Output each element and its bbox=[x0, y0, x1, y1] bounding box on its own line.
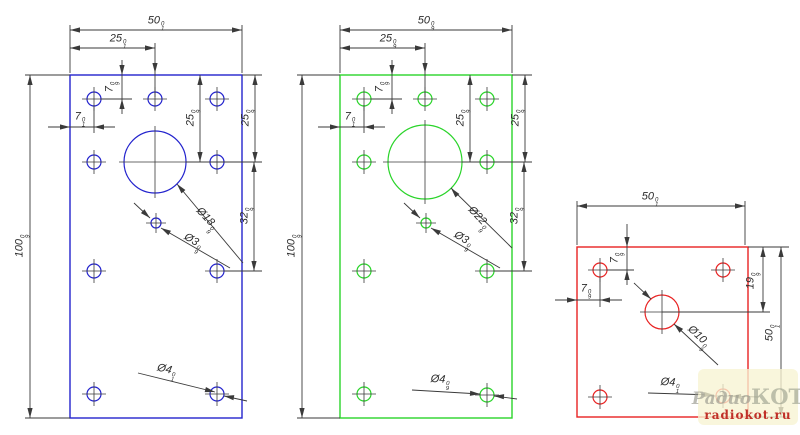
watermark-brand: РадиоКОТ bbox=[692, 389, 800, 407]
arrowhead bbox=[251, 261, 256, 271]
arrowhead bbox=[224, 393, 235, 400]
dim-label: 709 bbox=[374, 82, 391, 92]
dim-label: 3209 bbox=[509, 208, 526, 225]
dimension-arrows bbox=[27, 27, 783, 418]
dim-label: Ø401 bbox=[660, 376, 680, 394]
arrowhead bbox=[70, 27, 80, 32]
watermark-brand-script: Радио bbox=[692, 389, 751, 409]
arrowhead bbox=[567, 297, 577, 302]
dim-label: 709 bbox=[609, 253, 626, 263]
arrowhead bbox=[160, 226, 171, 236]
arrowhead bbox=[735, 203, 745, 208]
dim-label: 701 bbox=[345, 111, 355, 128]
arrowhead bbox=[299, 75, 304, 85]
dim-label: 709 bbox=[581, 283, 591, 300]
arrowhead bbox=[197, 152, 202, 162]
dim-label: Ø409 bbox=[430, 373, 450, 391]
arrowhead bbox=[145, 45, 155, 50]
plate-outline bbox=[70, 75, 242, 418]
arrowhead bbox=[252, 152, 257, 162]
cad-drawing bbox=[0, 0, 800, 435]
dim-label: 3209 bbox=[239, 208, 256, 225]
arrowhead bbox=[119, 99, 124, 109]
arrowhead bbox=[467, 75, 472, 85]
dim-label: 2509 bbox=[240, 110, 257, 127]
arrowhead bbox=[430, 226, 441, 236]
dim-label: 5009 bbox=[418, 15, 435, 32]
dim-label: 1909 bbox=[745, 273, 762, 290]
arrowhead bbox=[70, 45, 80, 50]
arrowhead bbox=[600, 297, 610, 302]
dimension-lines bbox=[25, 25, 789, 418]
arrowhead bbox=[624, 270, 629, 280]
watermark-brand-caps: КОТ bbox=[751, 384, 800, 409]
arrowhead bbox=[778, 247, 783, 257]
arrowhead bbox=[494, 393, 504, 399]
arrowhead bbox=[330, 124, 340, 129]
arrowhead bbox=[760, 302, 765, 312]
dim-label: 2509 bbox=[455, 110, 472, 127]
dim-label: 2509 bbox=[380, 33, 397, 50]
arrowhead bbox=[521, 162, 526, 172]
arrowhead bbox=[252, 75, 257, 85]
arrowhead bbox=[624, 237, 629, 247]
arrowhead bbox=[522, 152, 527, 162]
arrowhead bbox=[251, 162, 256, 172]
arrowhead bbox=[422, 63, 427, 73]
arrowhead bbox=[389, 65, 394, 75]
arrowhead bbox=[340, 45, 350, 50]
dim-label: 701 bbox=[75, 111, 85, 128]
watermark-badge[interactable]: РадиоКОТ radiokot.ru bbox=[698, 369, 798, 425]
cad-page: 5001250170970125092509320910009Ø1809Ø309… bbox=[0, 0, 800, 435]
arrowhead bbox=[152, 63, 157, 73]
arrowhead bbox=[197, 75, 202, 85]
dim-label: 2509 bbox=[185, 110, 202, 127]
arrowhead bbox=[119, 65, 124, 75]
dim-label: 2501 bbox=[110, 33, 127, 50]
dim-line bbox=[138, 373, 215, 392]
arrowhead bbox=[470, 391, 480, 397]
arrowhead bbox=[27, 75, 32, 85]
dim-label: 5001 bbox=[148, 15, 165, 32]
dim-label: 10009 bbox=[286, 235, 303, 258]
arrowhead bbox=[502, 27, 512, 32]
dim-label: 709 bbox=[104, 82, 121, 92]
watermark-site-link[interactable]: radiokot.ru bbox=[704, 407, 791, 423]
arrowhead bbox=[760, 247, 765, 257]
dim-label: 5001 bbox=[642, 191, 659, 208]
arrowhead bbox=[521, 261, 526, 271]
arrowhead bbox=[389, 99, 394, 109]
arrowhead bbox=[299, 408, 304, 418]
arrowhead bbox=[340, 27, 350, 32]
dim-label: 10009 bbox=[14, 235, 31, 258]
dim-label: 2509 bbox=[510, 110, 527, 127]
arrowhead bbox=[94, 124, 104, 129]
plate-left-blue bbox=[70, 75, 242, 418]
plate-outline bbox=[340, 75, 512, 418]
arrowhead bbox=[415, 45, 425, 50]
arrowhead bbox=[467, 152, 472, 162]
plate-middle-green bbox=[340, 75, 512, 418]
arrowhead bbox=[232, 27, 242, 32]
arrowhead bbox=[364, 124, 374, 129]
dim-label: 5001 bbox=[764, 325, 781, 342]
arrowhead bbox=[522, 75, 527, 85]
arrowhead bbox=[577, 203, 587, 208]
arrowhead bbox=[27, 408, 32, 418]
arrowhead bbox=[60, 124, 70, 129]
